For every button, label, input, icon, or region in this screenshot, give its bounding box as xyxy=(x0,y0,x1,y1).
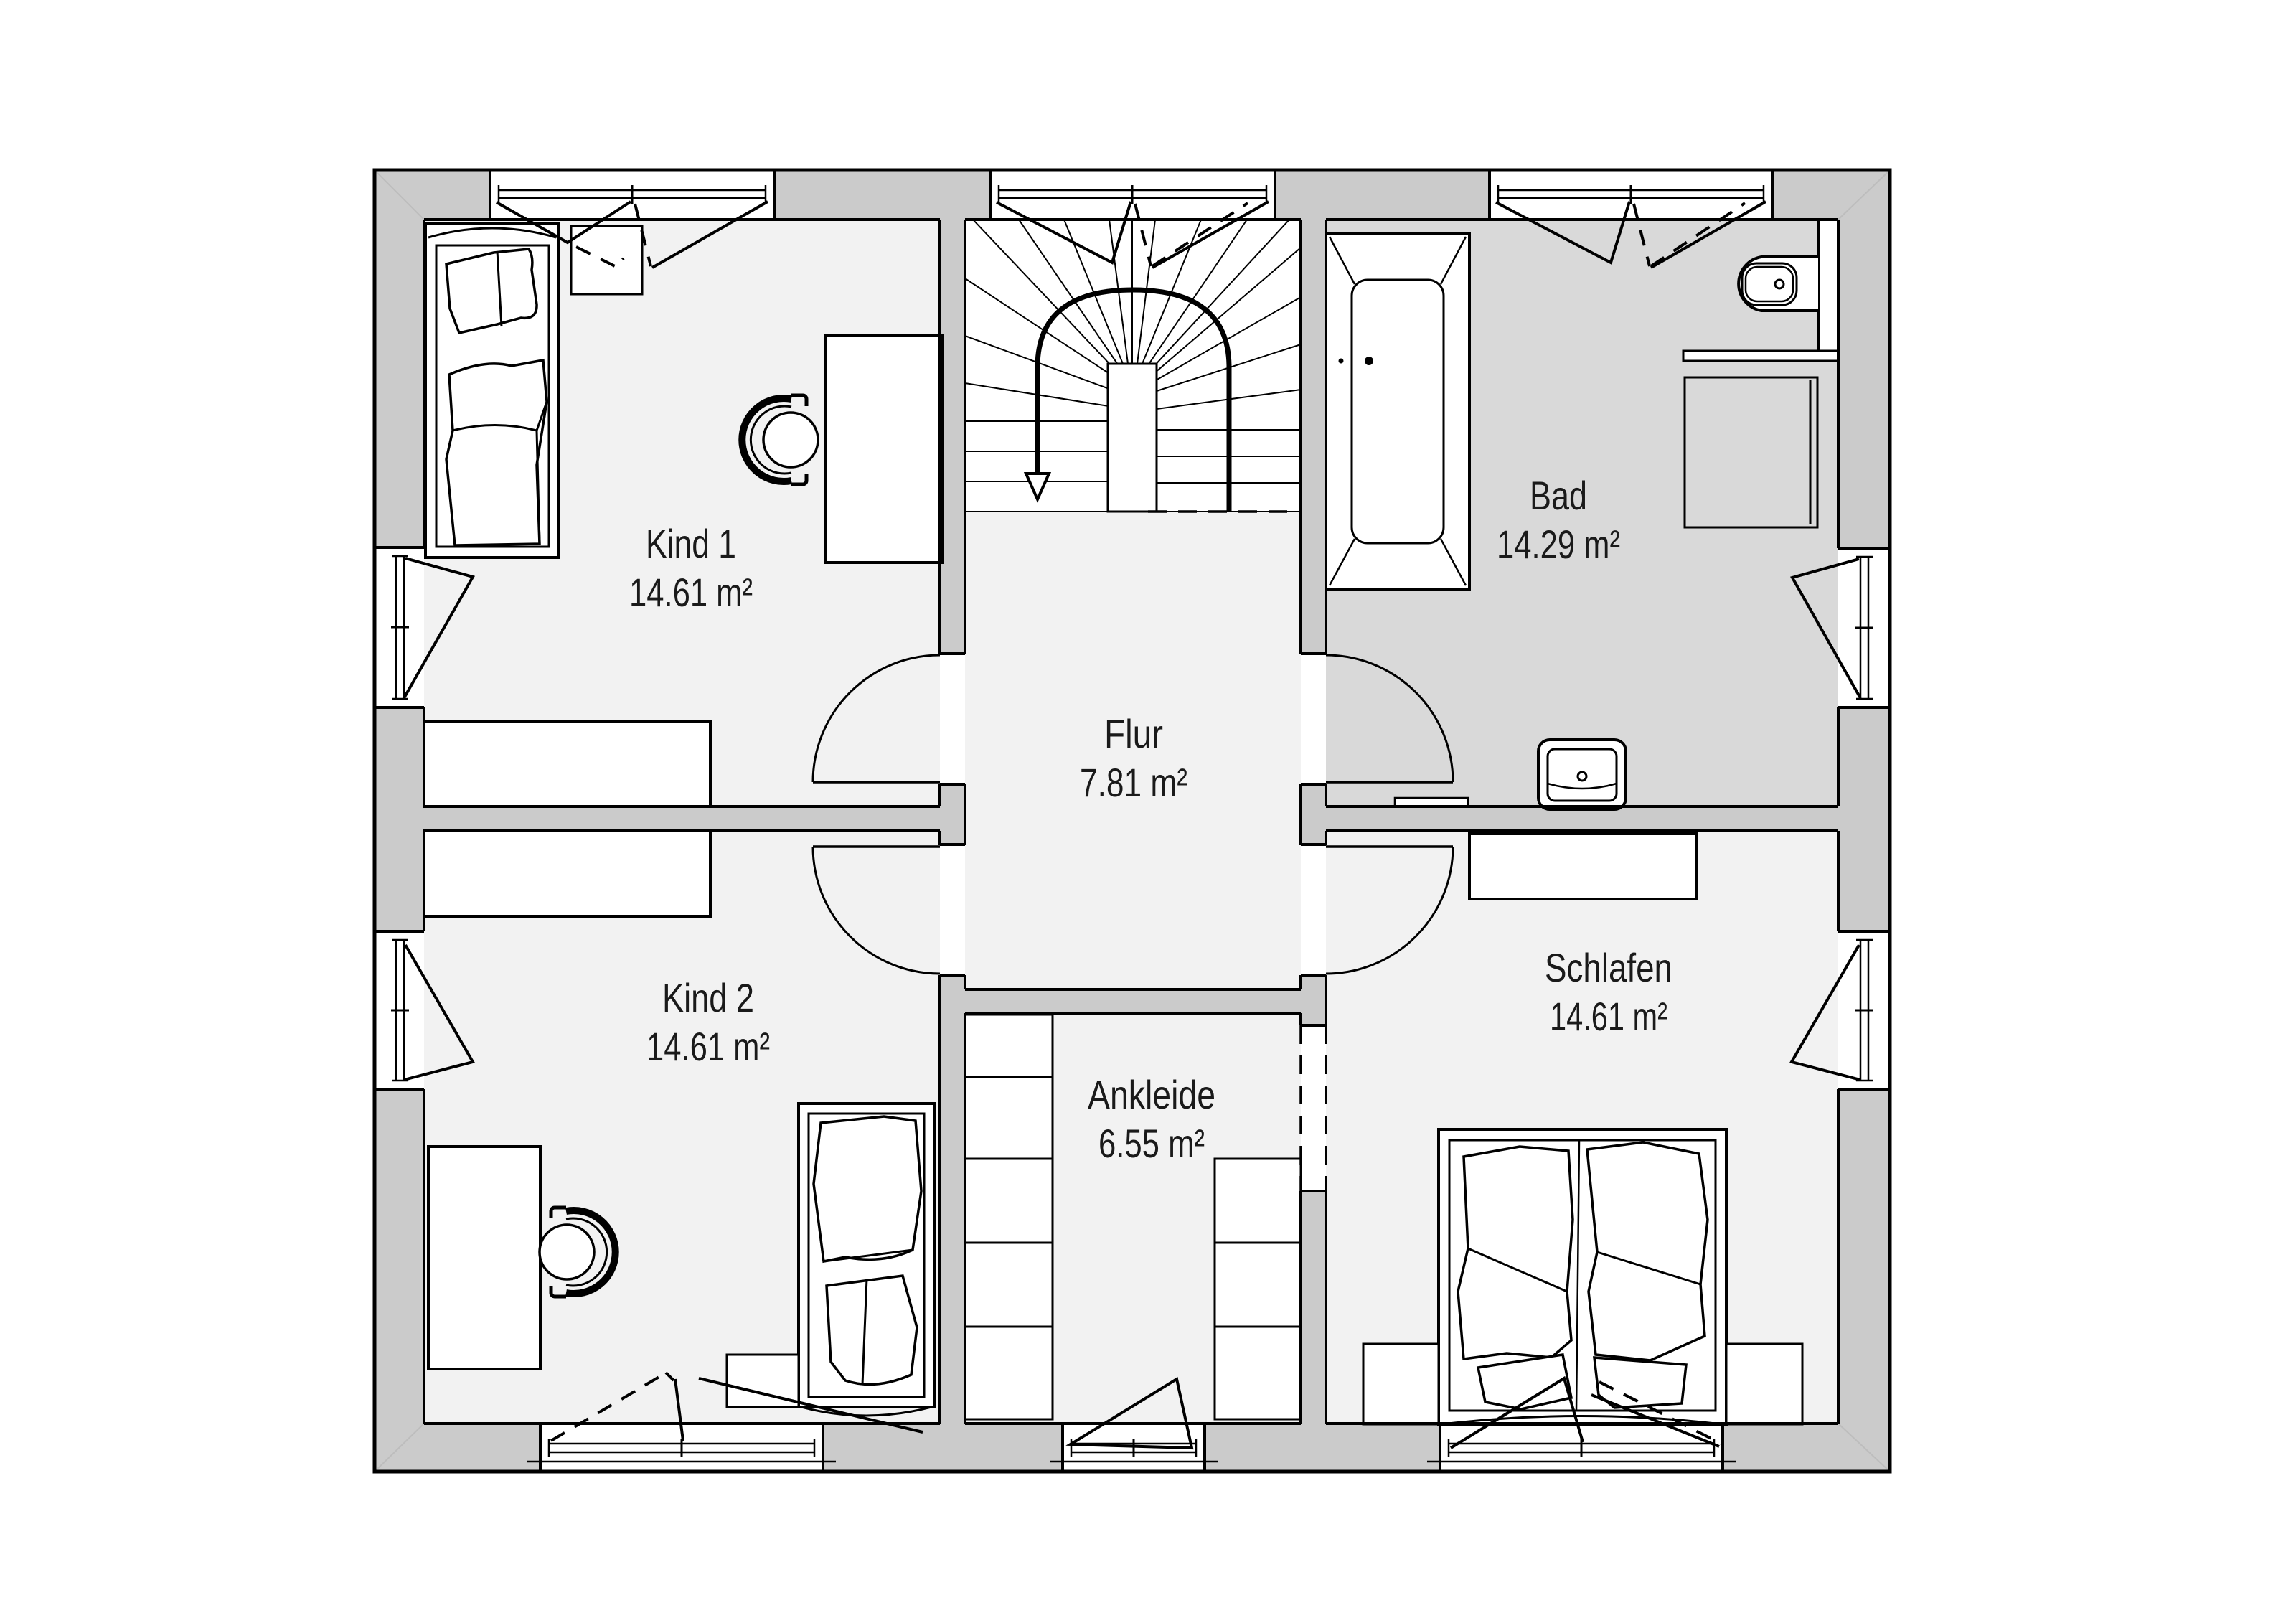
svg-text:7.81 m²: 7.81 m² xyxy=(1080,760,1187,805)
svg-text:6.55 m²: 6.55 m² xyxy=(1098,1121,1205,1166)
svg-text:14.61 m²: 14.61 m² xyxy=(646,1024,770,1069)
svg-text:Kind 1: Kind 1 xyxy=(646,521,736,566)
svg-text:Kind 2: Kind 2 xyxy=(662,975,754,1020)
svg-text:Schlafen: Schlafen xyxy=(1545,945,1672,990)
svg-text:Bad: Bad xyxy=(1530,473,1587,518)
svg-text:14.61 m²: 14.61 m² xyxy=(1550,994,1667,1039)
svg-text:14.61 m²: 14.61 m² xyxy=(629,570,753,615)
svg-text:14.29 m²: 14.29 m² xyxy=(1497,522,1620,567)
svg-text:Flur: Flur xyxy=(1104,711,1163,756)
svg-text:Ankleide: Ankleide xyxy=(1088,1072,1215,1117)
